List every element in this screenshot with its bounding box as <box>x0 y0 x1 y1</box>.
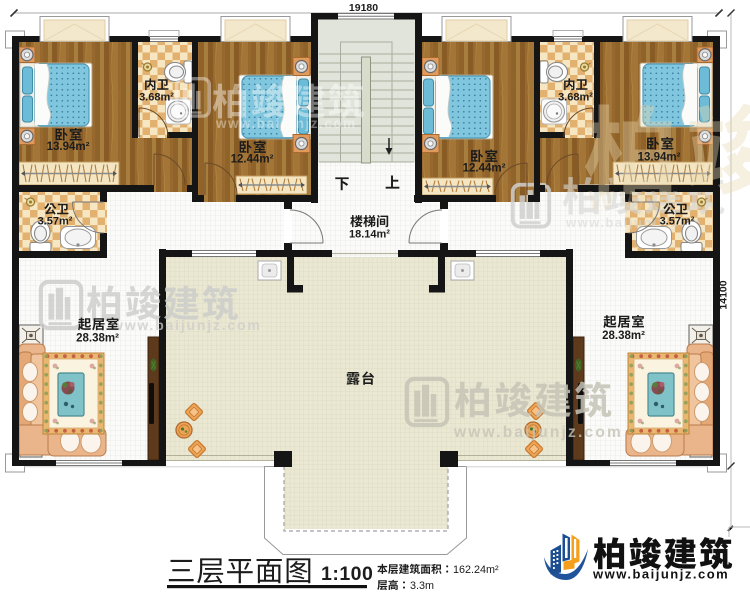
svg-text:3.68m²: 3.68m² <box>139 92 174 104</box>
svg-text:162.24m²: 162.24m² <box>453 564 499 576</box>
svg-text:www.baijunjz.com: www.baijunjz.com <box>592 567 729 582</box>
svg-text:www.baijunjz.com: www.baijunjz.com <box>111 317 262 333</box>
svg-text:www.baijunjz.com: www.baijunjz.com <box>453 424 623 441</box>
svg-text:13.94m²: 13.94m² <box>638 152 681 164</box>
svg-text:13.94m²: 13.94m² <box>47 141 90 153</box>
svg-text:19180: 19180 <box>349 2 378 14</box>
svg-text:12.44m²: 12.44m² <box>231 154 274 166</box>
svg-text:1:100: 1:100 <box>321 563 373 585</box>
svg-text:12.44m²: 12.44m² <box>463 163 506 175</box>
svg-text:www.baijunjz.com: www.baijunjz.com <box>215 116 357 131</box>
svg-text:3.57m²: 3.57m² <box>660 216 695 228</box>
svg-text:3.57m²: 3.57m² <box>38 216 73 228</box>
svg-text:WWW: WWW <box>588 185 682 216</box>
svg-text:3.3m: 3.3m <box>410 580 434 592</box>
svg-text:3.68m²: 3.68m² <box>558 92 593 104</box>
svg-text:28.38m²: 28.38m² <box>76 333 119 345</box>
svg-text:18.14m²: 18.14m² <box>349 229 390 241</box>
svg-text:28.38m²: 28.38m² <box>602 330 645 342</box>
